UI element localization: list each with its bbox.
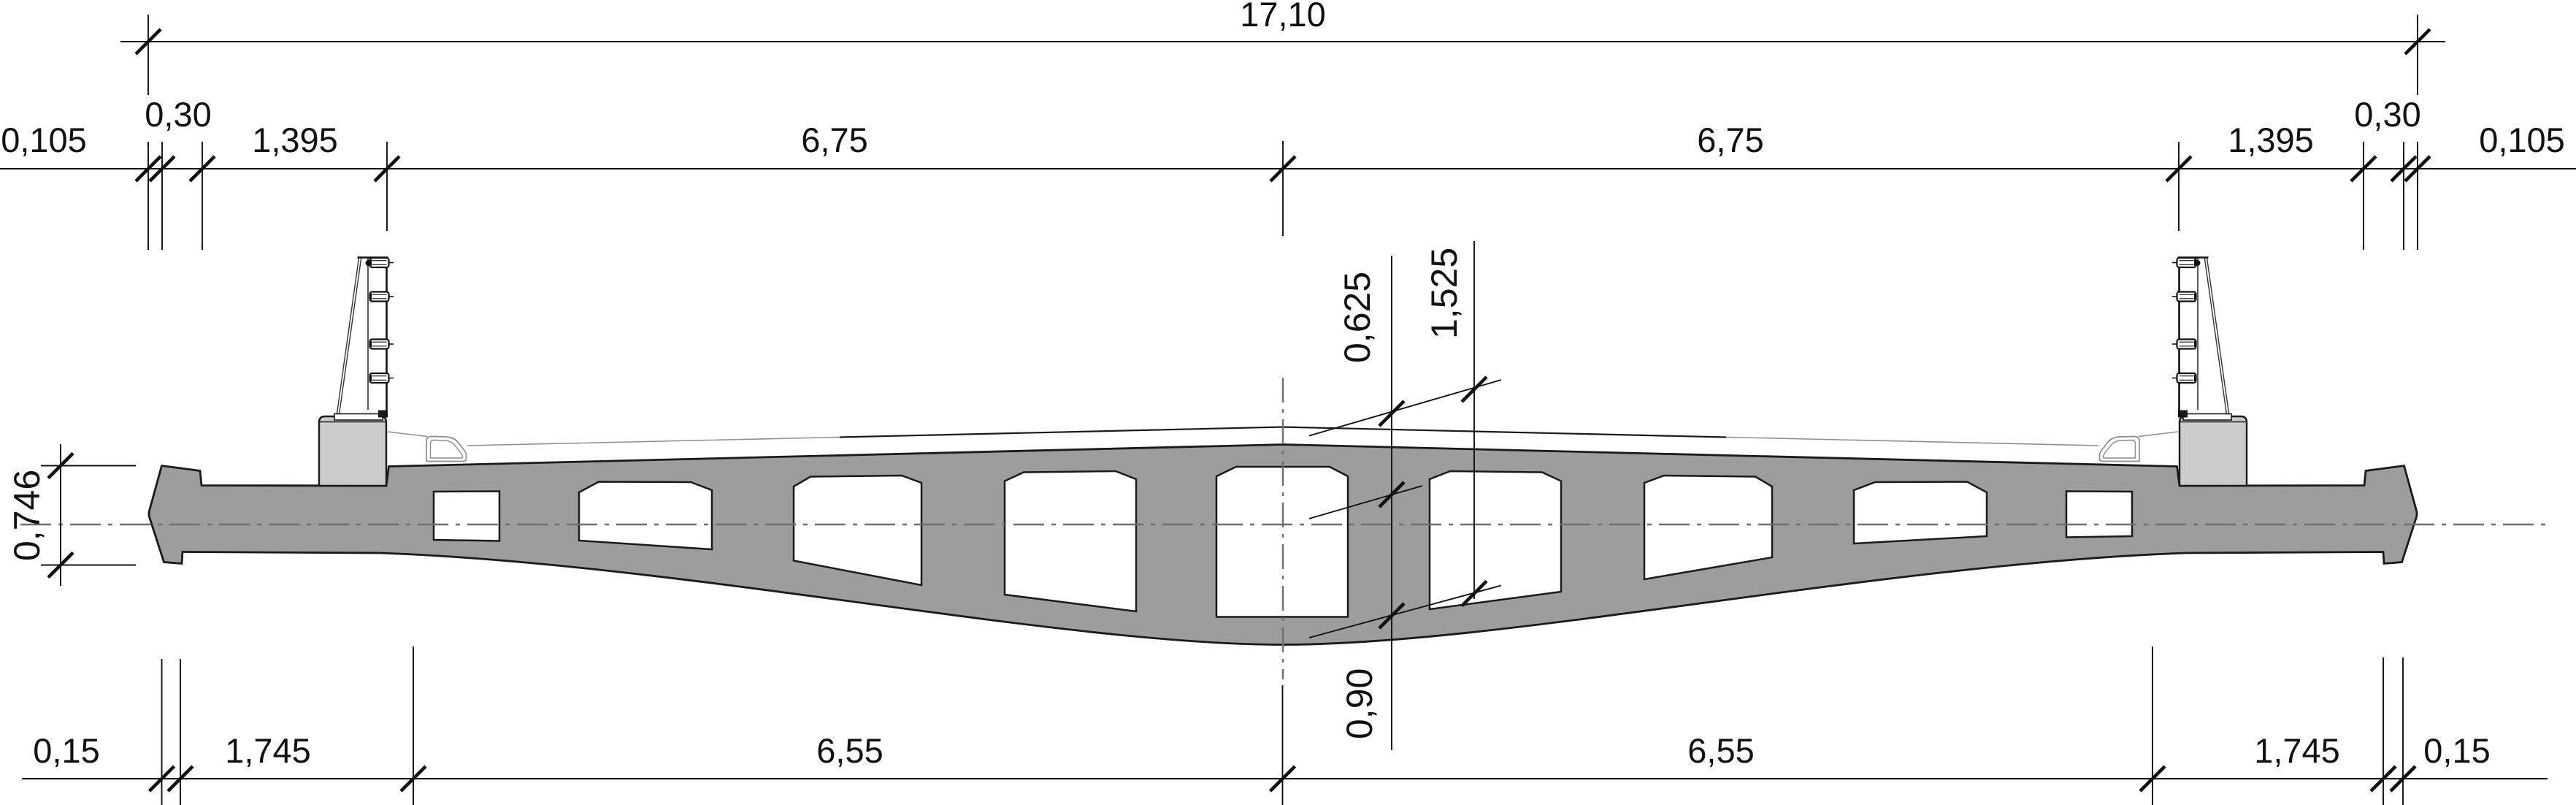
svg-text:6,75: 6,75 [1697,121,1763,159]
svg-text:0,90: 0,90 [1339,668,1380,739]
svg-text:1,745: 1,745 [2254,731,2340,770]
svg-text:1,745: 1,745 [225,731,311,770]
svg-text:0,105: 0,105 [1,121,87,159]
svg-text:0,30: 0,30 [145,95,211,134]
svg-text:0,15: 0,15 [2423,731,2490,770]
svg-text:0,30: 0,30 [2354,95,2420,134]
svg-text:6,55: 6,55 [816,731,883,770]
svg-text:0,625: 0,625 [1337,272,1378,363]
svg-text:1,395: 1,395 [2228,121,2314,159]
svg-text:1,395: 1,395 [252,121,338,159]
svg-text:6,75: 6,75 [801,121,867,159]
svg-text:0,15: 0,15 [33,731,99,770]
svg-text:0,746: 0,746 [7,470,47,561]
svg-text:1,525: 1,525 [1424,248,1465,339]
svg-text:6,55: 6,55 [1687,731,1754,770]
svg-text:17,10: 17,10 [1240,0,1326,34]
svg-text:0,105: 0,105 [2479,121,2565,159]
